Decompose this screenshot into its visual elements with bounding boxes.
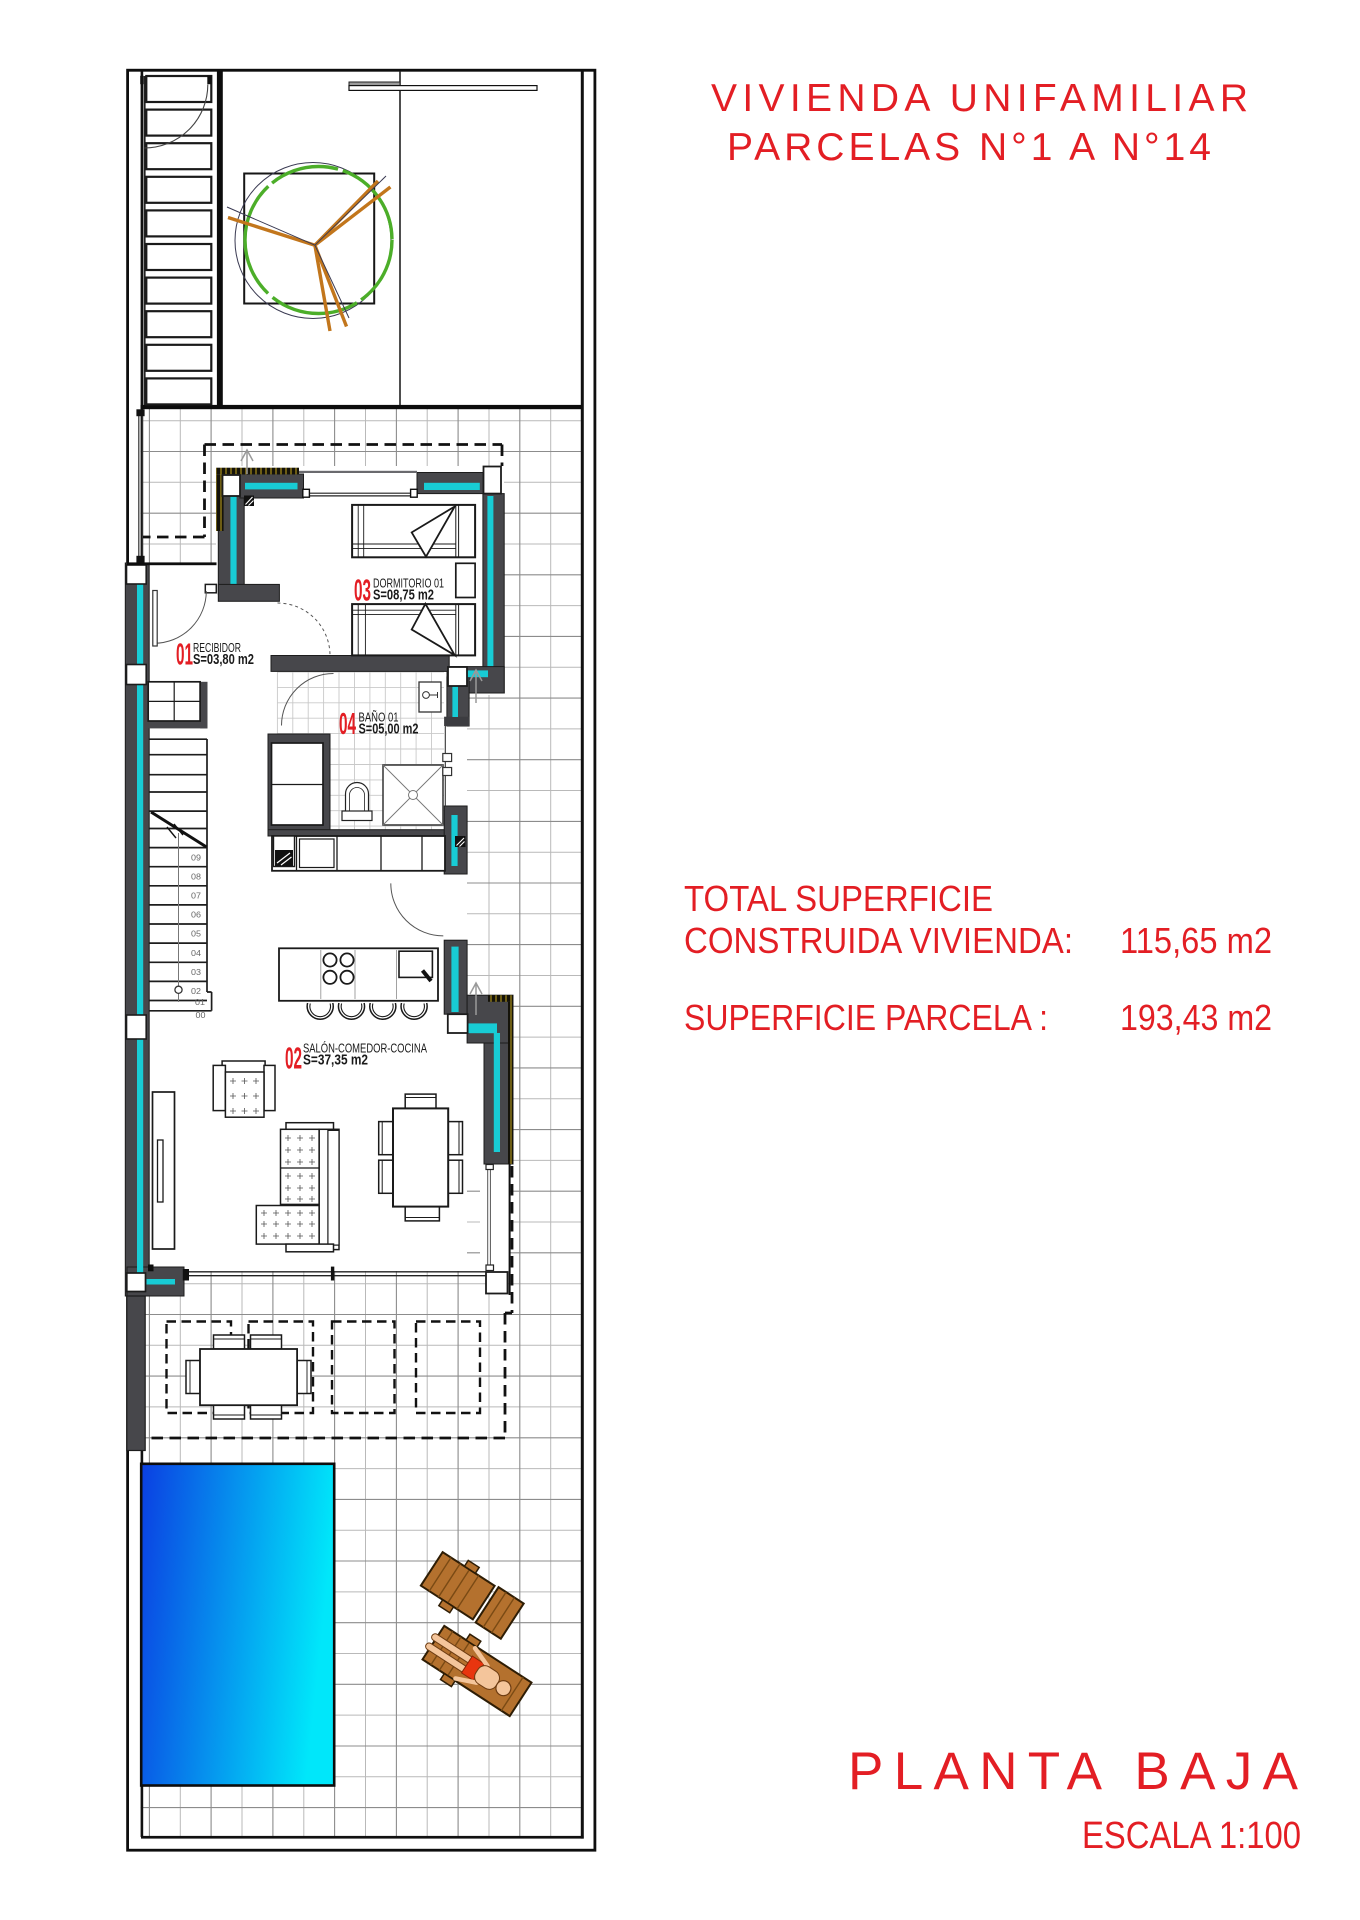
svg-text:115,65 m2: 115,65 m2 (1120, 920, 1272, 961)
svg-text:01: 01 (176, 637, 193, 672)
svg-text:09: 09 (191, 853, 201, 863)
svg-text:08: 08 (191, 872, 201, 882)
svg-text:06: 06 (191, 910, 201, 920)
svg-text:07: 07 (191, 891, 201, 901)
svg-text:03: 03 (191, 967, 201, 977)
svg-text:PARCELAS N°1 A N°14: PARCELAS N°1 A N°14 (727, 126, 1211, 169)
svg-text:SUPERFICIE PARCELA :: SUPERFICIE PARCELA : (684, 997, 1048, 1038)
svg-text:01: 01 (195, 997, 205, 1007)
svg-text:04: 04 (339, 706, 356, 741)
svg-text:193,43 m2: 193,43 m2 (1120, 997, 1272, 1038)
svg-text:04: 04 (191, 948, 201, 958)
svg-text:CONSTRUIDA VIVIENDA:: CONSTRUIDA VIVIENDA: (684, 920, 1073, 961)
svg-text:05: 05 (191, 929, 201, 939)
svg-text:00: 00 (196, 1010, 206, 1020)
svg-text:02: 02 (191, 986, 201, 996)
svg-text:S=08,75 m2: S=08,75 m2 (373, 588, 434, 604)
svg-text:02: 02 (285, 1041, 302, 1076)
svg-text:PLANTA BAJA: PLANTA BAJA (848, 1742, 1299, 1801)
svg-text:03: 03 (354, 573, 371, 608)
svg-text:ESCALA 1:100: ESCALA 1:100 (1082, 1815, 1301, 1857)
svg-text:S=03,80 m2: S=03,80 m2 (193, 652, 254, 668)
svg-text:TOTAL SUPERFICIE: TOTAL SUPERFICIE (684, 878, 993, 919)
svg-text:S=05,00 m2: S=05,00 m2 (359, 722, 419, 738)
svg-text:S=37,35 m2: S=37,35 m2 (303, 1053, 368, 1069)
